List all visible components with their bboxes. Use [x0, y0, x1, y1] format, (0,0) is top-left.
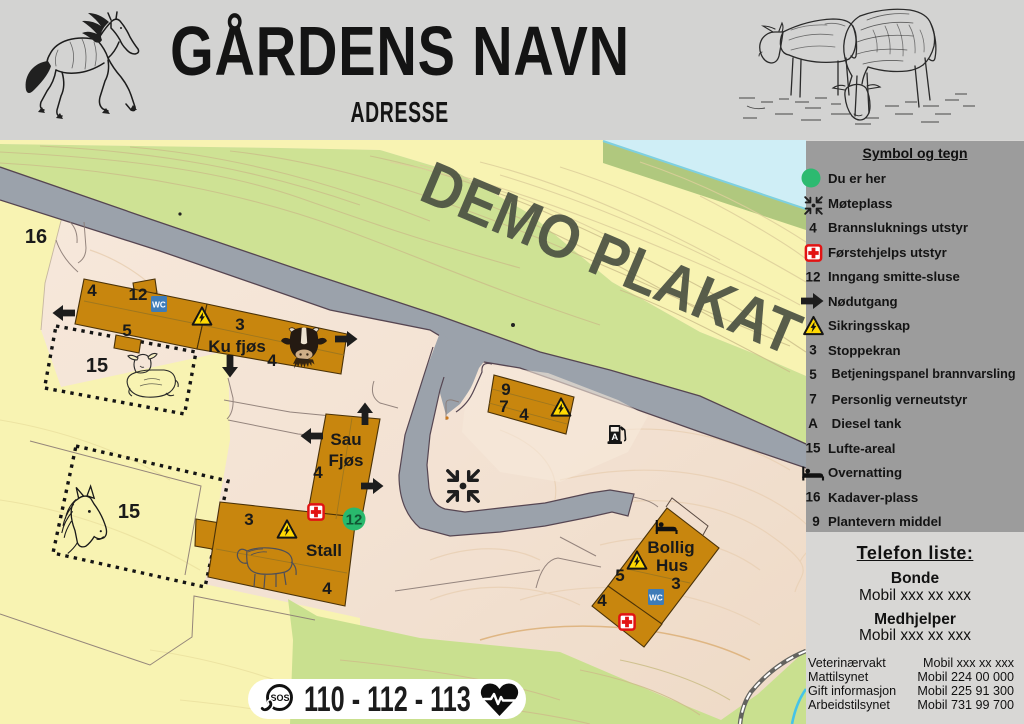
svg-text:15: 15 [805, 441, 821, 456]
svg-text:9: 9 [812, 514, 820, 529]
svg-text:7: 7 [809, 392, 817, 407]
svg-text:4: 4 [597, 591, 607, 610]
svg-text:Ku fjøs: Ku fjøs [208, 337, 266, 356]
svg-text:12: 12 [805, 270, 820, 285]
svg-text:15: 15 [118, 501, 140, 523]
svg-text:4: 4 [267, 351, 277, 370]
svg-text:3: 3 [235, 315, 244, 334]
svg-text:5: 5 [122, 321, 131, 340]
svg-text:Stall: Stall [306, 541, 342, 560]
svg-text:12: 12 [129, 285, 148, 304]
svg-text:3: 3 [244, 510, 253, 529]
svg-text:4: 4 [87, 281, 97, 300]
svg-text:3: 3 [809, 343, 817, 358]
svg-text:12: 12 [346, 512, 363, 529]
svg-text:4: 4 [322, 579, 332, 598]
svg-text:Fjøs: Fjøs [329, 451, 364, 470]
svg-text:Bollig: Bollig [647, 538, 694, 557]
svg-text:Hus: Hus [656, 556, 688, 575]
svg-text:SOS: SOS [270, 693, 289, 703]
svg-text:4: 4 [313, 463, 323, 482]
svg-text:16: 16 [25, 226, 47, 248]
svg-text:5: 5 [809, 367, 817, 382]
svg-text:3: 3 [671, 574, 680, 593]
svg-text:5: 5 [615, 566, 624, 585]
svg-text:4: 4 [519, 405, 529, 424]
svg-text:16: 16 [805, 490, 821, 505]
svg-text:A: A [808, 416, 818, 431]
svg-text:7: 7 [499, 397, 508, 416]
svg-text:A: A [611, 432, 618, 443]
svg-text:15: 15 [86, 355, 108, 377]
svg-text:Sau: Sau [330, 430, 361, 449]
svg-text:4: 4 [809, 221, 817, 236]
